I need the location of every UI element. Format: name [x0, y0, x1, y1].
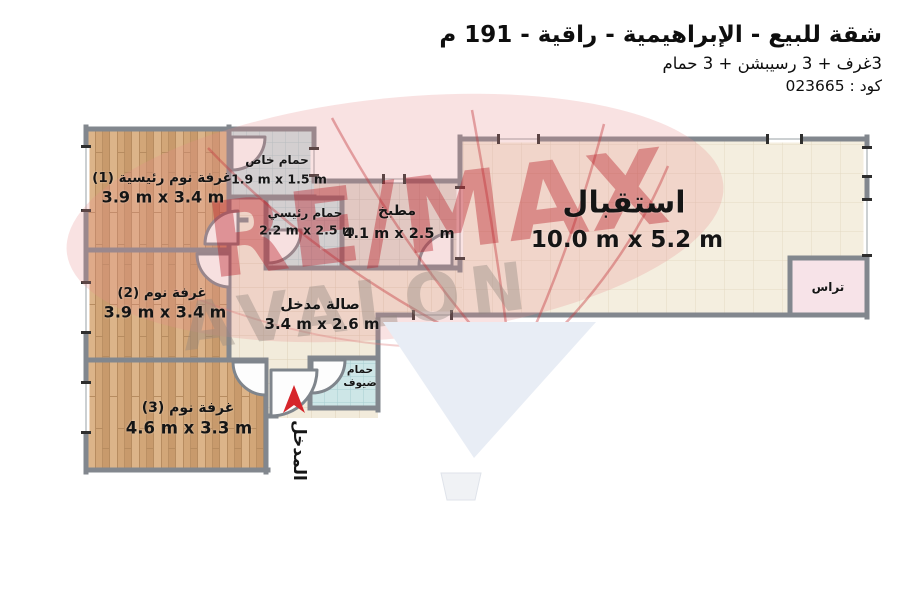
window-icon: [862, 146, 872, 178]
master-bedroom-label: غرفة نوم رئيسية (1): [92, 170, 232, 186]
kitchen-dims: 4.1 m x 2.5 m: [343, 226, 454, 242]
guest-bath-label-line1: حمام: [343, 364, 376, 377]
master-bath-dims: 2.2 m x 2.5 m: [259, 223, 355, 238]
balloon-basket-shape: [441, 473, 481, 500]
master-bath-label: حمام رئيسي: [268, 206, 343, 220]
private-bath-label: حمام خاص: [245, 153, 308, 167]
bedroom2-label: غرفة نوم (2): [117, 285, 206, 301]
entry-hall-dims: 3.4 m x 2.6 m: [265, 315, 380, 333]
window-icon: [766, 134, 803, 144]
private-bath-dims: 1.9 m x 1.5 m: [231, 172, 327, 187]
entry-hall-label: صالة مدخل: [280, 297, 360, 313]
floorplan-page: شقة للبيع - الإبراهيمية - راقية - 191 م …: [0, 0, 900, 599]
bedroom3-dims: 4.6 m x 3.3 m: [126, 419, 252, 438]
guest-bath-label-line2: ضيوف: [343, 377, 376, 390]
bedroom3-label: غرفة نوم (3): [142, 400, 235, 416]
reception-label: استقبال: [562, 186, 685, 221]
master-bedroom-dims: 3.9 m x 3.4 m: [102, 188, 225, 207]
bedroom2-dims: 3.9 m x 3.4 m: [104, 303, 227, 322]
window-icon: [862, 198, 872, 257]
entrance-label: المدخل: [289, 420, 309, 481]
window-icon: [81, 381, 91, 434]
balloon-lower-panel-shape: [383, 322, 596, 458]
reception-dims: 10.0 m x 5.2 m: [531, 227, 723, 253]
kitchen-label: مطبخ: [378, 203, 416, 219]
terrace-label: تراس: [812, 280, 845, 294]
guest-bath-label: حمام ضيوف: [343, 364, 376, 390]
